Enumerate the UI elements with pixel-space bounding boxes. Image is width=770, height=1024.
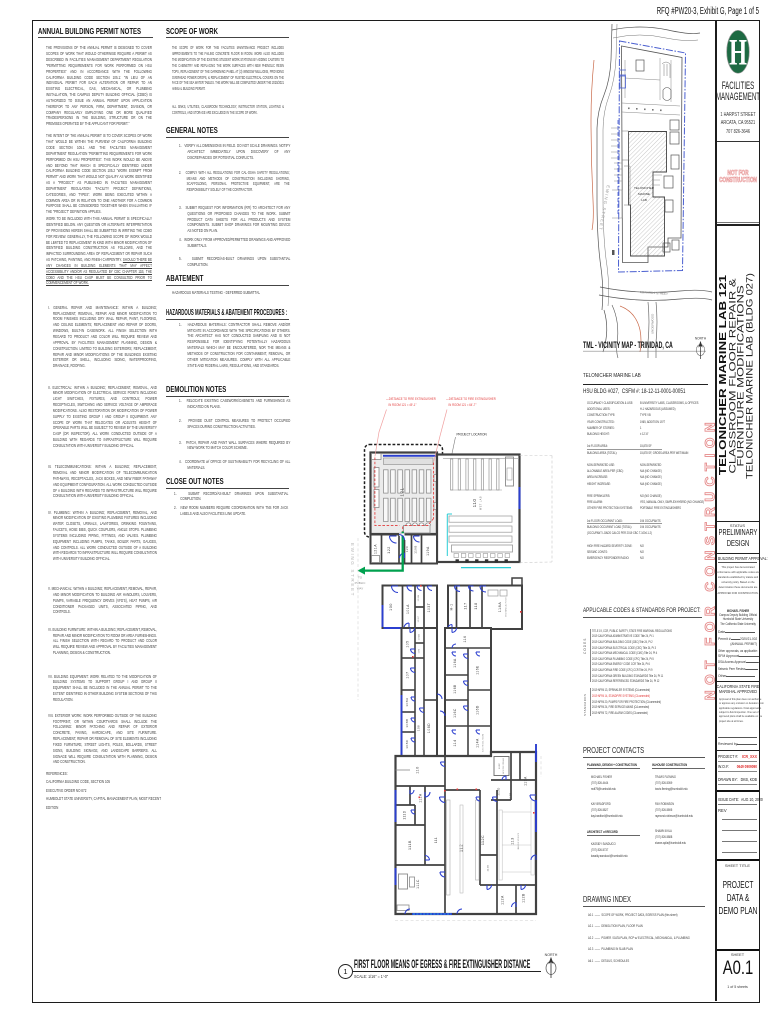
svg-text:111: 111 — [434, 837, 438, 843]
svg-text:116D: 116D — [476, 705, 480, 715]
svg-text:EWING STREET: EWING STREET — [350, 543, 355, 597]
svg-text:EDWARDS STREET: EDWARDS STREET — [640, 290, 668, 296]
svg-text:—DISTANCE TO FIRE EXTINGUISHER: —DISTANCE TO FIRE EXTINGUISHER — [446, 397, 496, 401]
svg-text:111B: 111B — [408, 840, 412, 850]
svg-text:EWING STREET: EWING STREET — [598, 185, 611, 231]
svg-text:MECHANICAL ROOM: MECHANICAL ROOM — [505, 597, 508, 617]
svg-text:103T: 103T — [427, 603, 431, 613]
svg-text:121: 121 — [400, 487, 405, 496]
svg-text:116E: 116E — [476, 665, 480, 675]
svg-text:105A: 105A — [418, 634, 421, 641]
svg-text:100: 100 — [389, 603, 393, 611]
svg-text:IN ROOM 121 = 64'-7": IN ROOM 121 = 64'-7" — [449, 403, 477, 407]
svg-text:101B: 101B — [418, 594, 420, 601]
svg-text:121A: 121A — [374, 544, 378, 554]
svg-text:122: 122 — [387, 546, 391, 554]
svg-text:113A: 113A — [524, 776, 528, 786]
svg-text:120: 120 — [405, 546, 409, 552]
svg-text:113B: 113B — [511, 792, 513, 799]
svg-text:113C: 113C — [499, 763, 501, 769]
svg-text:WET LAB: WET LAB — [480, 496, 483, 510]
svg-text:114A: 114A — [476, 738, 480, 748]
svg-text:MARINE: MARINE — [638, 192, 650, 196]
svg-text:108D: 108D — [427, 723, 431, 733]
svg-text:H: H — [729, 32, 747, 73]
svg-text:111C: 111C — [416, 879, 420, 889]
svg-text:118: 118 — [474, 602, 478, 609]
svg-text:108: 108 — [417, 725, 421, 731]
svg-text:111D: 111D — [403, 810, 407, 819]
svg-text:IN ROOM 121 = 49'-1": IN ROOM 121 = 49'-1" — [389, 403, 417, 407]
svg-text:110: 110 — [416, 766, 420, 774]
svg-text:119A: 119A — [426, 546, 430, 556]
svg-text:101A: 101A — [406, 604, 410, 614]
svg-text:108B: 108B — [405, 718, 409, 727]
svg-text:112C: 112C — [481, 835, 485, 845]
svg-text:112B: 112B — [522, 893, 526, 903]
svg-text:—DISTANCE TO FIRE EXTINGUISHER: —DISTANCE TO FIRE EXTINGUISHER — [386, 397, 436, 401]
svg-text:114: 114 — [453, 740, 457, 747]
svg-text:PROJECT LOCATION: PROJECT LOCATION — [456, 432, 487, 436]
svg-text:116C: 116C — [453, 708, 457, 718]
svg-text:116A: 116A — [453, 658, 457, 668]
svg-text:H-1: H-1 — [450, 604, 454, 611]
svg-text:116B: 116B — [453, 684, 457, 694]
svg-text:TO: TO — [358, 576, 363, 580]
svg-text:TML - VICINITY MAP - TRINIDAD,: TML - VICINITY MAP - TRINIDAD, CA — [583, 339, 673, 350]
svg-text:112A: 112A — [501, 895, 505, 905]
svg-text:110: 110 — [472, 499, 477, 508]
svg-text:107: 107 — [406, 671, 410, 678]
svg-text:118A: 118A — [498, 602, 502, 613]
svg-text:101C: 101C — [418, 616, 420, 623]
svg-text:LAB: LAB — [641, 198, 647, 202]
svg-text:113: 113 — [511, 837, 515, 845]
svg-text:NORTH: NORTH — [695, 337, 707, 341]
svg-text:UNDERWOOD: UNDERWOOD — [651, 313, 655, 334]
svg-text:113D: 113D — [497, 787, 501, 795]
svg-text:PUBLIC: PUBLIC — [355, 581, 367, 585]
svg-text:TELONICHER: TELONICHER — [634, 186, 655, 190]
svg-text:105: 105 — [406, 640, 410, 647]
svg-text:119B: 119B — [414, 545, 418, 554]
svg-text:106: 106 — [419, 649, 421, 654]
svg-text:116: 116 — [463, 636, 467, 643]
svg-text:112D: 112D — [488, 864, 490, 871]
svg-text:108A: 108A — [405, 697, 409, 707]
svg-text:117: 117 — [464, 602, 468, 609]
svg-text:108C: 108C — [405, 739, 409, 749]
